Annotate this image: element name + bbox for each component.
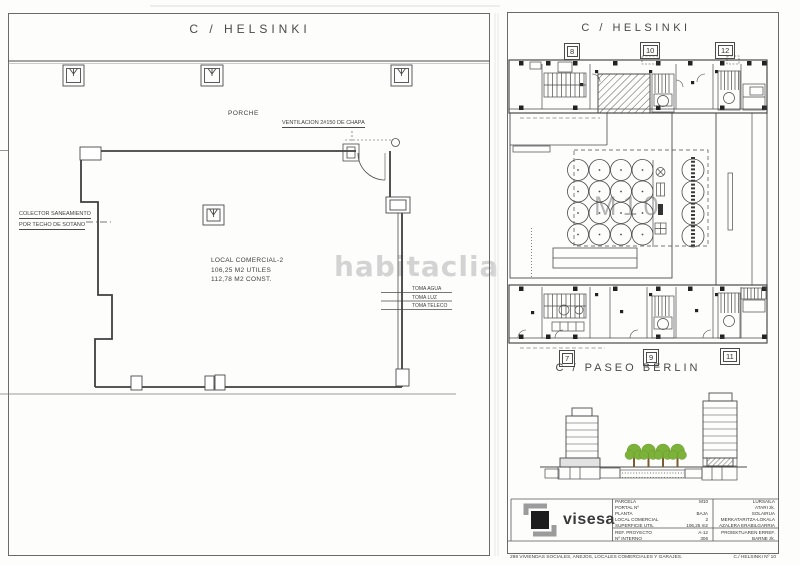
project-address: C./ HELSINKI Nº 10 SALBURUA. VITORIA-GAS… [600, 543, 776, 565]
scanned-floor-plan-page: habitaclia M10 [0, 0, 800, 565]
hedge-row [682, 157, 704, 248]
collector-label-line1: COLECTOR SANEAMIENTO [19, 211, 91, 219]
visesa-logo: visesa [511, 499, 612, 541]
visesa-logo-text: visesa [563, 511, 615, 529]
right-tower [703, 393, 737, 466]
unit-area-built: 112,78 M2 CONST. [211, 276, 272, 283]
stairwell-c [718, 71, 740, 110]
south-building-strip [509, 285, 767, 348]
stairwell-b [652, 74, 674, 112]
courtyard [510, 113, 767, 285]
interior-window-icon [203, 205, 224, 225]
unit-name-label: LOCAL COMERCIAL-2 [211, 257, 283, 264]
street-label-paseo-berlin: C / PASEO BERLIN [528, 362, 728, 374]
utility-label-water: TOMA AGUA [412, 286, 441, 292]
table-row: Nº INTERNO 306 BARNE zk. [613, 536, 777, 542]
elevation-trees [625, 444, 687, 467]
stairwell-c2 [718, 293, 740, 338]
courtyard-symbols [655, 168, 666, 235]
stairwell-b2 [652, 296, 674, 338]
bench [728, 173, 733, 230]
portal-number-8: 8 [564, 43, 580, 60]
tree-grid [568, 160, 654, 246]
porch-label: PORCHE [228, 110, 259, 117]
portal-number-9: 9 [643, 349, 659, 366]
stairwell-a2 [544, 294, 586, 331]
stairwell-a [530, 62, 586, 97]
street-label-helsinki-left: C / HELSINKI [130, 22, 370, 36]
visesa-logo-mark [523, 503, 557, 537]
portal-number-11: 11 [720, 348, 740, 365]
landscaping-boundary [574, 150, 708, 246]
site-plan-drawing [500, 0, 800, 565]
street-label-helsinki-right: C / HELSINKI [536, 22, 736, 34]
collector-label-line2: POR TECHO DE SOTANO [19, 222, 85, 230]
left-tower [560, 408, 600, 467]
north-building-strip [509, 56, 767, 118]
portal-number-7: 7 [559, 350, 575, 367]
basement-level [545, 467, 737, 480]
porch-band [9, 61, 490, 64]
portal-number-10: 10 [640, 42, 660, 59]
unit-area-useful: 106,25 M2 UTILES [211, 267, 271, 274]
entrance-door-arc [358, 153, 385, 180]
utility-label-telecom: TOMA TELECO [412, 303, 447, 309]
hatched-commercial-unit [598, 74, 650, 113]
utility-label-electric: TOMA LUZ [412, 295, 437, 301]
sheet-fold-lines [495, 13, 498, 556]
building-elevation [540, 393, 747, 480]
ventilation-shaft [343, 131, 400, 161]
title-block-table: PARCELA M10 LURSAILA PORTAL Nº ATARI zk.… [613, 499, 777, 543]
left-sheet-border [9, 14, 490, 556]
portal-number-12: 12 [715, 42, 735, 59]
porch-pillar-window-icons [63, 65, 412, 86]
ventilation-label: VENTILACION 2#150 DE CHAPA [282, 120, 365, 128]
